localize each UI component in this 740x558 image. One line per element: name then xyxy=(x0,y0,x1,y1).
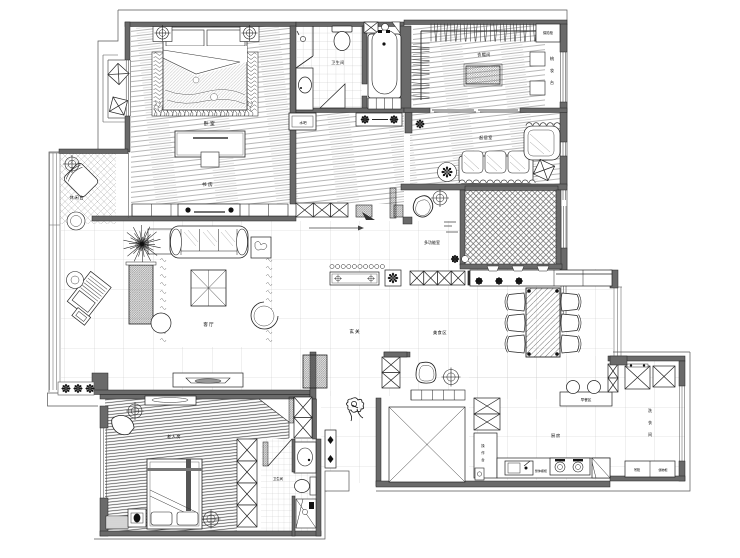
svg-text:多功能室: 多功能室 xyxy=(424,239,440,245)
svg-text:台: 台 xyxy=(550,79,554,85)
svg-text:起居室: 起居室 xyxy=(479,134,493,140)
svg-text:保险柜: 保险柜 xyxy=(543,30,554,35)
svg-text:卧室: 卧室 xyxy=(204,120,217,127)
svg-text:整体橱柜: 整体橱柜 xyxy=(535,468,547,473)
svg-text:水吧: 水吧 xyxy=(299,120,307,125)
svg-text:梳: 梳 xyxy=(550,55,554,61)
svg-text:洗: 洗 xyxy=(648,407,652,413)
svg-text:衣帽间: 衣帽间 xyxy=(477,51,491,57)
svg-text:玄关: 玄关 xyxy=(349,328,360,335)
svg-text:书房: 书房 xyxy=(202,181,215,188)
svg-text:卫生间: 卫生间 xyxy=(331,59,345,65)
svg-text:衣: 衣 xyxy=(648,419,652,425)
svg-text:间: 间 xyxy=(648,431,652,437)
svg-text:储物柜: 储物柜 xyxy=(658,467,667,472)
svg-text:客厅: 客厅 xyxy=(203,321,214,328)
svg-text:早餐区: 早餐区 xyxy=(581,397,592,402)
svg-text:妆: 妆 xyxy=(550,67,554,73)
svg-text:吊柜: 吊柜 xyxy=(634,467,641,472)
svg-text:厨房: 厨房 xyxy=(551,432,561,439)
svg-text:老人房: 老人房 xyxy=(167,433,181,440)
svg-text:卫生间: 卫生间 xyxy=(273,476,284,481)
svg-text:美食区: 美食区 xyxy=(433,329,447,336)
svg-text:休闲台: 休闲台 xyxy=(70,194,85,201)
